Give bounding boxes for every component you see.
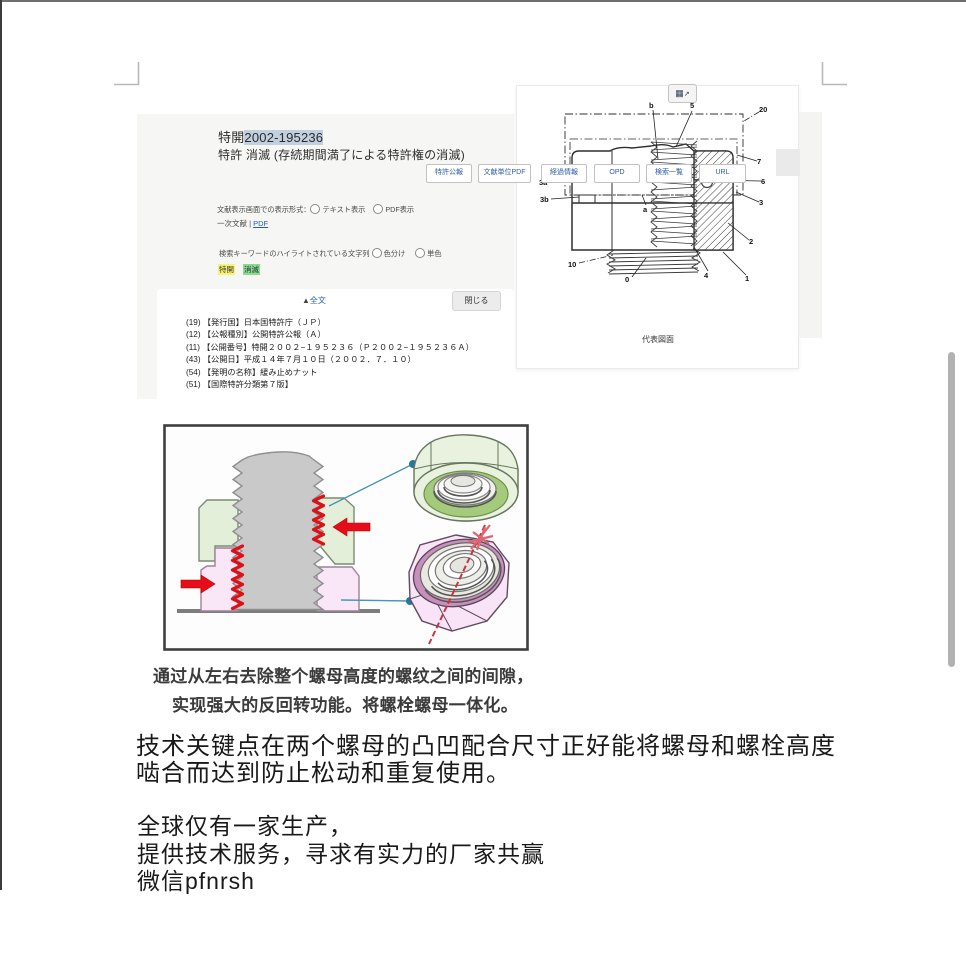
svg-text:6: 6 <box>761 177 765 186</box>
svg-text:0: 0 <box>625 275 629 284</box>
svg-text:1: 1 <box>745 274 749 283</box>
svg-text:7: 7 <box>757 157 761 166</box>
svg-text:a: a <box>643 205 648 214</box>
svg-text:10: 10 <box>568 260 576 269</box>
svg-text:4: 4 <box>704 271 709 280</box>
svg-text:20: 20 <box>759 105 767 114</box>
svg-text:代表図面: 代表図面 <box>642 334 674 344</box>
svg-text:3b: 3b <box>540 195 549 204</box>
svg-text:b: b <box>649 101 654 110</box>
svg-text:2: 2 <box>749 237 753 246</box>
svg-text:3: 3 <box>759 198 763 207</box>
